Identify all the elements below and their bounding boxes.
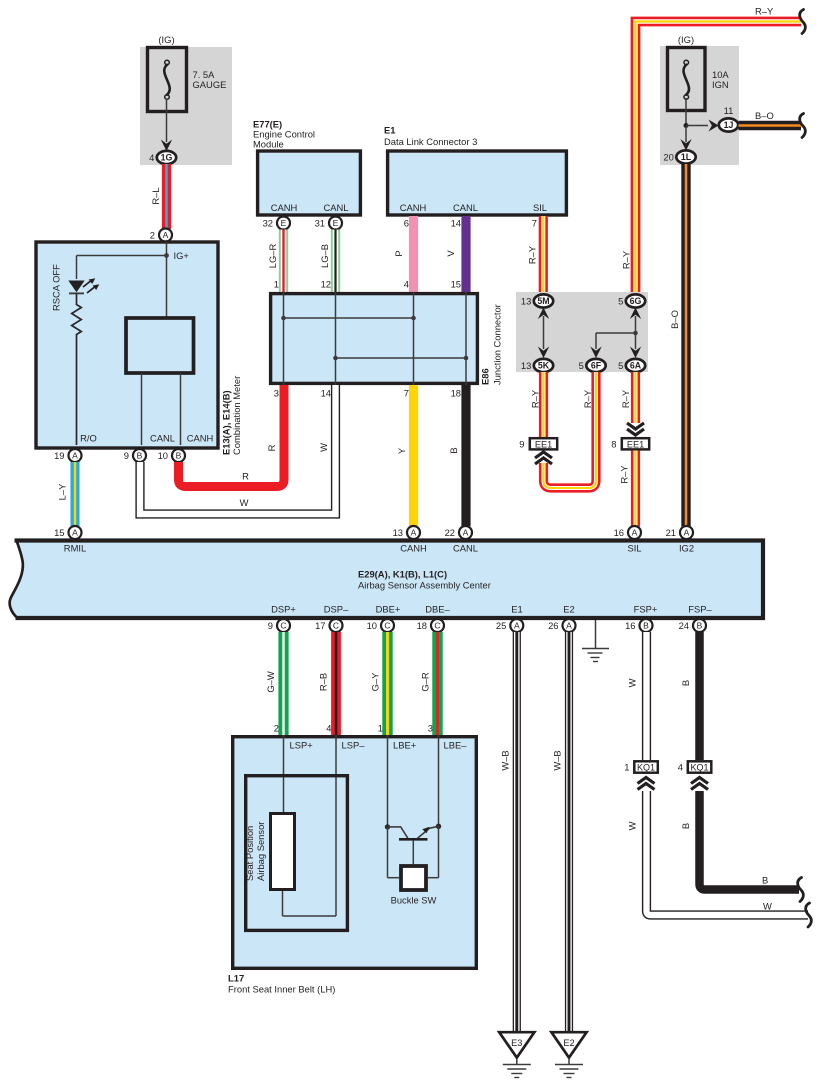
svg-text:W: W (318, 443, 329, 452)
svg-text:R–Y: R–Y (582, 389, 593, 408)
svg-text:R–B: R–B (318, 673, 329, 691)
svg-text:18: 18 (451, 388, 461, 399)
svg-text:7: 7 (532, 218, 537, 229)
svg-text:Y: Y (396, 447, 407, 454)
svg-text:10: 10 (367, 620, 377, 631)
svg-text:E1: E1 (511, 604, 522, 615)
svg-text:DSP+: DSP+ (271, 604, 296, 615)
svg-text:12: 12 (321, 279, 331, 290)
svg-text:R–Y: R–Y (621, 250, 632, 269)
svg-text:2: 2 (274, 723, 279, 734)
svg-text:E: E (333, 218, 339, 228)
svg-text:G–W: G–W (265, 671, 276, 693)
svg-text:E3: E3 (511, 1038, 522, 1048)
svg-text:CANH: CANH (400, 202, 427, 213)
svg-text:E86: E86 (480, 368, 491, 385)
svg-text:9: 9 (124, 450, 129, 461)
svg-text:G–R: G–R (420, 672, 431, 692)
svg-text:Seat Position: Seat Position (244, 826, 255, 881)
svg-text:DSP–: DSP– (324, 604, 349, 615)
svg-text:LSP–: LSP– (342, 740, 366, 751)
svg-text:E: E (281, 218, 287, 228)
svg-text:Combination Meter: Combination Meter (231, 376, 242, 455)
svg-text:LG–B: LG–B (319, 244, 330, 268)
svg-text:15: 15 (451, 279, 461, 290)
svg-text:1: 1 (378, 723, 383, 734)
svg-text:1J: 1J (724, 120, 734, 130)
svg-text:LBE+: LBE+ (393, 740, 417, 751)
svg-text:6: 6 (404, 218, 409, 229)
svg-text:R–Y: R–Y (619, 465, 630, 484)
svg-text:25: 25 (496, 620, 506, 631)
svg-text:DBE–: DBE– (425, 604, 450, 615)
svg-text:Junction Connector: Junction Connector (492, 304, 503, 385)
svg-text:5: 5 (618, 295, 623, 306)
svg-text:LG–R: LG–R (267, 244, 278, 269)
svg-text:GAUGE: GAUGE (193, 79, 227, 90)
svg-text:SIL: SIL (627, 543, 641, 554)
svg-text:CANH: CANH (187, 433, 214, 444)
svg-text:A: A (514, 621, 520, 631)
svg-text:31: 31 (315, 217, 325, 228)
svg-text:16: 16 (625, 620, 635, 631)
svg-text:13: 13 (521, 295, 531, 306)
svg-text:FSP–: FSP– (688, 604, 712, 615)
svg-text:9: 9 (268, 620, 273, 631)
svg-text:IG2: IG2 (679, 543, 694, 554)
svg-text:B: B (697, 621, 703, 631)
svg-text:5: 5 (618, 360, 623, 371)
svg-text:R–Y: R–Y (755, 6, 774, 17)
svg-text:Front Seat Inner Belt (LH): Front Seat Inner Belt (LH) (228, 984, 335, 995)
svg-text:B: B (680, 823, 691, 829)
svg-text:22: 22 (445, 527, 455, 538)
svg-text:R/O: R/O (80, 433, 97, 444)
svg-text:A: A (163, 230, 169, 240)
svg-text:E2: E2 (563, 604, 574, 615)
svg-text:RMIL: RMIL (64, 543, 86, 554)
svg-text:R–Y: R–Y (530, 389, 541, 408)
svg-text:R: R (266, 444, 277, 451)
svg-text:(IG): (IG) (158, 34, 174, 45)
svg-text:B: B (448, 447, 459, 453)
svg-text:4: 4 (404, 279, 409, 290)
svg-text:Buckle SW: Buckle SW (391, 895, 437, 906)
svg-text:SIL: SIL (533, 202, 547, 213)
svg-text:3: 3 (428, 723, 433, 734)
svg-text:17: 17 (315, 620, 325, 631)
svg-text:R–Y: R–Y (527, 245, 538, 264)
svg-text:FSP+: FSP+ (634, 604, 658, 615)
svg-text:Airbag Sensor Assembly Center: Airbag Sensor Assembly Center (358, 580, 491, 591)
svg-text:EE1: EE1 (535, 440, 552, 450)
svg-text:P: P (393, 250, 404, 256)
svg-text:26: 26 (548, 620, 558, 631)
svg-text:DBE+: DBE+ (376, 604, 401, 615)
svg-text:V: V (445, 250, 456, 257)
svg-text:A: A (566, 621, 572, 631)
svg-text:14: 14 (451, 218, 461, 229)
svg-text:Airbag Sensor: Airbag Sensor (255, 822, 266, 881)
svg-text:10: 10 (158, 450, 168, 461)
svg-text:W: W (627, 821, 638, 830)
svg-text:15: 15 (54, 527, 64, 538)
svg-text:B: B (137, 451, 143, 461)
svg-text:6G: 6G (630, 296, 642, 306)
svg-text:9: 9 (519, 439, 524, 450)
svg-text:3: 3 (274, 388, 279, 399)
svg-text:7: 7 (404, 388, 409, 399)
svg-text:A: A (72, 528, 78, 538)
svg-text:E2: E2 (563, 1038, 574, 1048)
svg-text:2: 2 (150, 229, 155, 240)
svg-text:1L: 1L (681, 152, 692, 162)
svg-text:18: 18 (417, 620, 427, 631)
svg-text:21: 21 (666, 527, 676, 538)
svg-text:R–L: R–L (150, 187, 161, 204)
svg-text:B–O: B–O (755, 110, 774, 121)
svg-text:C: C (333, 621, 339, 631)
svg-text:RSCA OFF: RSCA OFF (51, 264, 62, 311)
svg-text:1: 1 (274, 279, 279, 290)
svg-text:KQ1: KQ1 (637, 763, 655, 773)
svg-text:19: 19 (54, 450, 64, 461)
svg-text:C: C (280, 621, 286, 631)
svg-text:CANH: CANH (271, 202, 298, 213)
svg-text:R: R (242, 471, 249, 482)
svg-text:16: 16 (614, 527, 624, 538)
svg-text:1G: 1G (161, 153, 173, 163)
svg-text:C: C (434, 621, 440, 631)
svg-text:Module: Module (253, 138, 284, 149)
svg-text:W: W (627, 678, 638, 687)
svg-text:CANL: CANL (453, 543, 478, 554)
svg-text:A: A (411, 528, 417, 538)
svg-text:5K: 5K (538, 361, 550, 371)
svg-text:G–Y: G–Y (370, 672, 381, 692)
svg-text:B: B (762, 875, 768, 886)
svg-text:(IG): (IG) (678, 34, 694, 45)
svg-text:B: B (176, 451, 182, 461)
svg-text:13: 13 (393, 527, 403, 538)
svg-text:W: W (763, 901, 772, 912)
svg-text:KQ1: KQ1 (690, 763, 708, 773)
svg-text:L17: L17 (228, 973, 244, 984)
svg-text:5M: 5M (537, 296, 549, 306)
svg-text:LBE–: LBE– (444, 740, 468, 751)
svg-text:B: B (680, 680, 691, 686)
svg-text:4: 4 (149, 152, 154, 163)
svg-text:IG+: IG+ (174, 250, 190, 261)
svg-text:6F: 6F (591, 361, 602, 371)
svg-text:5: 5 (579, 360, 584, 371)
svg-text:B: B (643, 621, 649, 631)
svg-text:A: A (72, 451, 78, 461)
svg-text:A: A (684, 528, 690, 538)
svg-text:W–B: W–B (500, 750, 511, 770)
svg-text:20: 20 (663, 151, 673, 162)
svg-text:EE1: EE1 (627, 440, 644, 450)
svg-text:CANL: CANL (323, 202, 348, 213)
svg-text:32: 32 (263, 217, 273, 228)
svg-text:CANH: CANH (400, 543, 427, 554)
svg-text:CANL: CANL (150, 433, 175, 444)
svg-text:11: 11 (724, 105, 734, 116)
svg-text:W–B: W–B (552, 750, 563, 770)
svg-text:4: 4 (678, 762, 683, 773)
svg-text:8: 8 (611, 439, 616, 450)
svg-text:R–Y: R–Y (620, 389, 631, 408)
svg-text:E29(A), K1(B), L1(C): E29(A), K1(B), L1(C) (358, 569, 447, 580)
svg-text:A: A (463, 528, 469, 538)
svg-text:CANL: CANL (453, 202, 478, 213)
svg-text:B–O: B–O (669, 310, 680, 329)
svg-text:E13(A), E14(B): E13(A), E14(B) (221, 390, 232, 455)
svg-text:6A: 6A (630, 361, 642, 371)
svg-text:L–Y: L–Y (57, 483, 68, 500)
svg-text:W: W (240, 497, 249, 508)
svg-text:LSP+: LSP+ (290, 740, 314, 751)
svg-text:1: 1 (624, 762, 629, 773)
svg-text:IGN: IGN (712, 79, 729, 90)
svg-text:4: 4 (326, 723, 331, 734)
svg-text:E1: E1 (384, 125, 395, 136)
svg-text:14: 14 (321, 388, 331, 399)
svg-text:Data Link Connector 3: Data Link Connector 3 (384, 136, 477, 147)
svg-text:A: A (632, 528, 638, 538)
svg-text:24: 24 (679, 620, 689, 631)
svg-text:C: C (384, 621, 390, 631)
svg-text:13: 13 (521, 360, 531, 371)
